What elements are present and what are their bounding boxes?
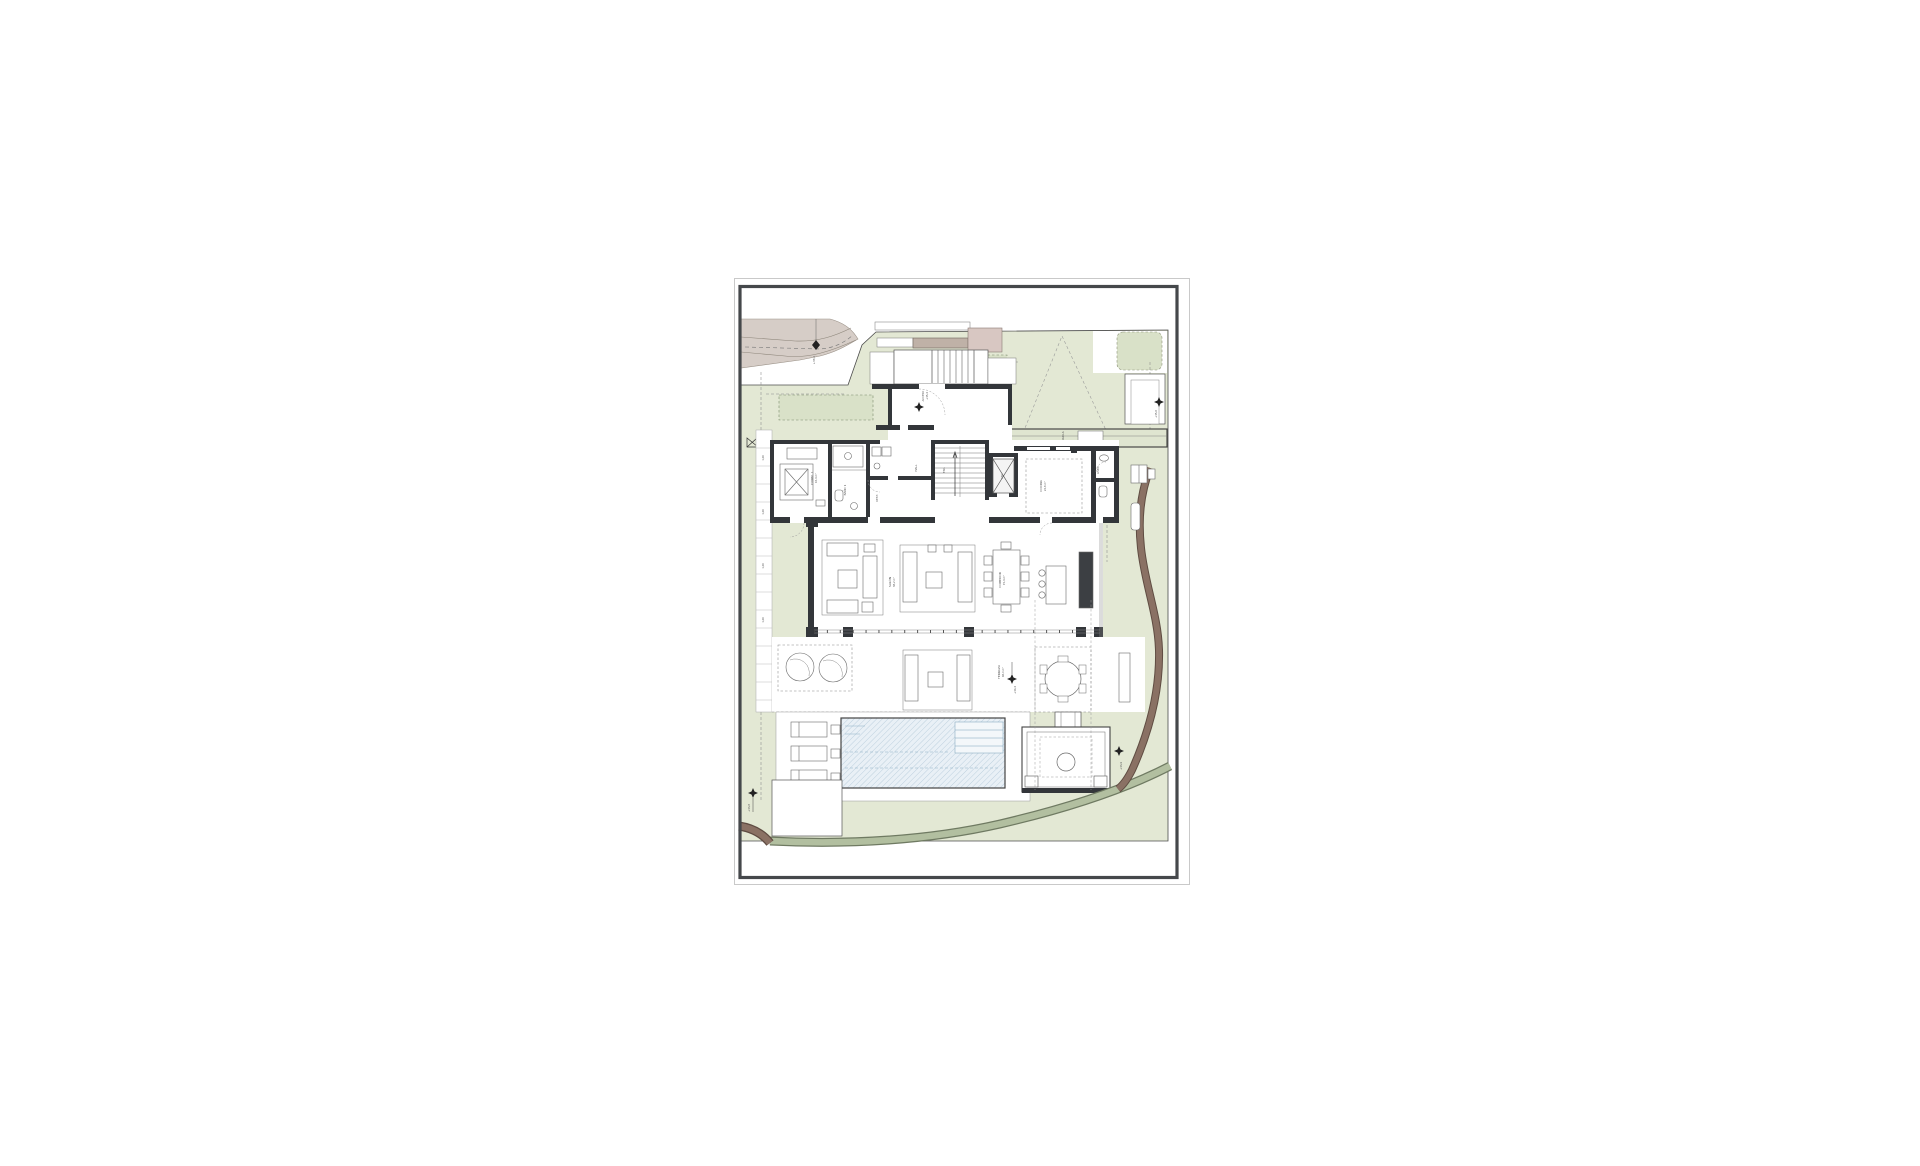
sun-loungers: [791, 722, 840, 785]
garden-bench: [1131, 503, 1140, 530]
screenshot-canvas: +36,2 1,20 1,20 1,20 1,20: [0, 0, 1920, 1166]
outdoor-sofa-set: [903, 650, 972, 710]
gate-platform: +35,6: [1125, 374, 1165, 424]
dining-label: COMEDOR: [998, 572, 1002, 588]
lift-label: ASC.: [1000, 473, 1004, 479]
living-area-label: 38,2 m²: [892, 577, 896, 587]
stair-label: ESC.: [942, 467, 946, 473]
gate-elevation-label: +35,6: [1154, 410, 1158, 418]
terrace-area-label: 46,0 m²: [1001, 667, 1005, 677]
planting-bed: [779, 395, 873, 420]
round-lounger: [786, 653, 814, 681]
floor-plan-sheet: +36,2 1,20 1,20 1,20 1,20: [734, 278, 1190, 885]
round-lounger: [819, 654, 847, 682]
walkway-dim: 1,20: [762, 617, 765, 623]
planter-wall: [968, 328, 1002, 352]
walkway-dim: 1,20: [762, 455, 765, 461]
entry-label: ACCESO: [921, 391, 925, 402]
deck-elev-label: +33,8: [747, 804, 751, 812]
bedroom-label: DORM. 1: [810, 471, 814, 484]
entry-elev-label: +35,4: [925, 392, 929, 400]
terrace: [772, 637, 1145, 712]
dining-area-label: 15,4 m²: [1002, 575, 1006, 585]
walkway-dim: 1,20: [762, 563, 765, 569]
side-walkway: 1,20 1,20 1,20 1,20: [756, 430, 772, 712]
kitchen-label: COCINA: [1039, 479, 1043, 492]
living-furniture: [822, 540, 883, 615]
vestibule-label: VEST.: [875, 494, 879, 502]
planter: [1119, 653, 1130, 702]
living-label: SALÓN: [887, 577, 892, 587]
bedroom-area-label: 16,4 m²: [814, 473, 818, 483]
entry-canopy: [913, 338, 968, 348]
swimming-pool: [841, 718, 1005, 788]
bath-label: BAÑO 1: [842, 484, 847, 495]
fire-elev-label: +33,9: [1119, 762, 1123, 770]
road-elevation-label: +36,2: [812, 355, 816, 364]
kitchen-area-label: 22,6 m²: [1043, 481, 1047, 491]
fire-pit: [1057, 753, 1075, 771]
tall-cabinet-wall: [1079, 552, 1093, 608]
lower-patio: [772, 780, 842, 836]
lounge-furniture: [900, 545, 975, 612]
hall-label: HALL: [914, 464, 918, 472]
terrace-label: TERRAZA: [997, 664, 1001, 680]
walkway-dim: 1,20: [762, 509, 765, 515]
terrace-elev-label: +34,4: [1013, 686, 1017, 694]
powder-label: ASEO: [1096, 465, 1100, 473]
